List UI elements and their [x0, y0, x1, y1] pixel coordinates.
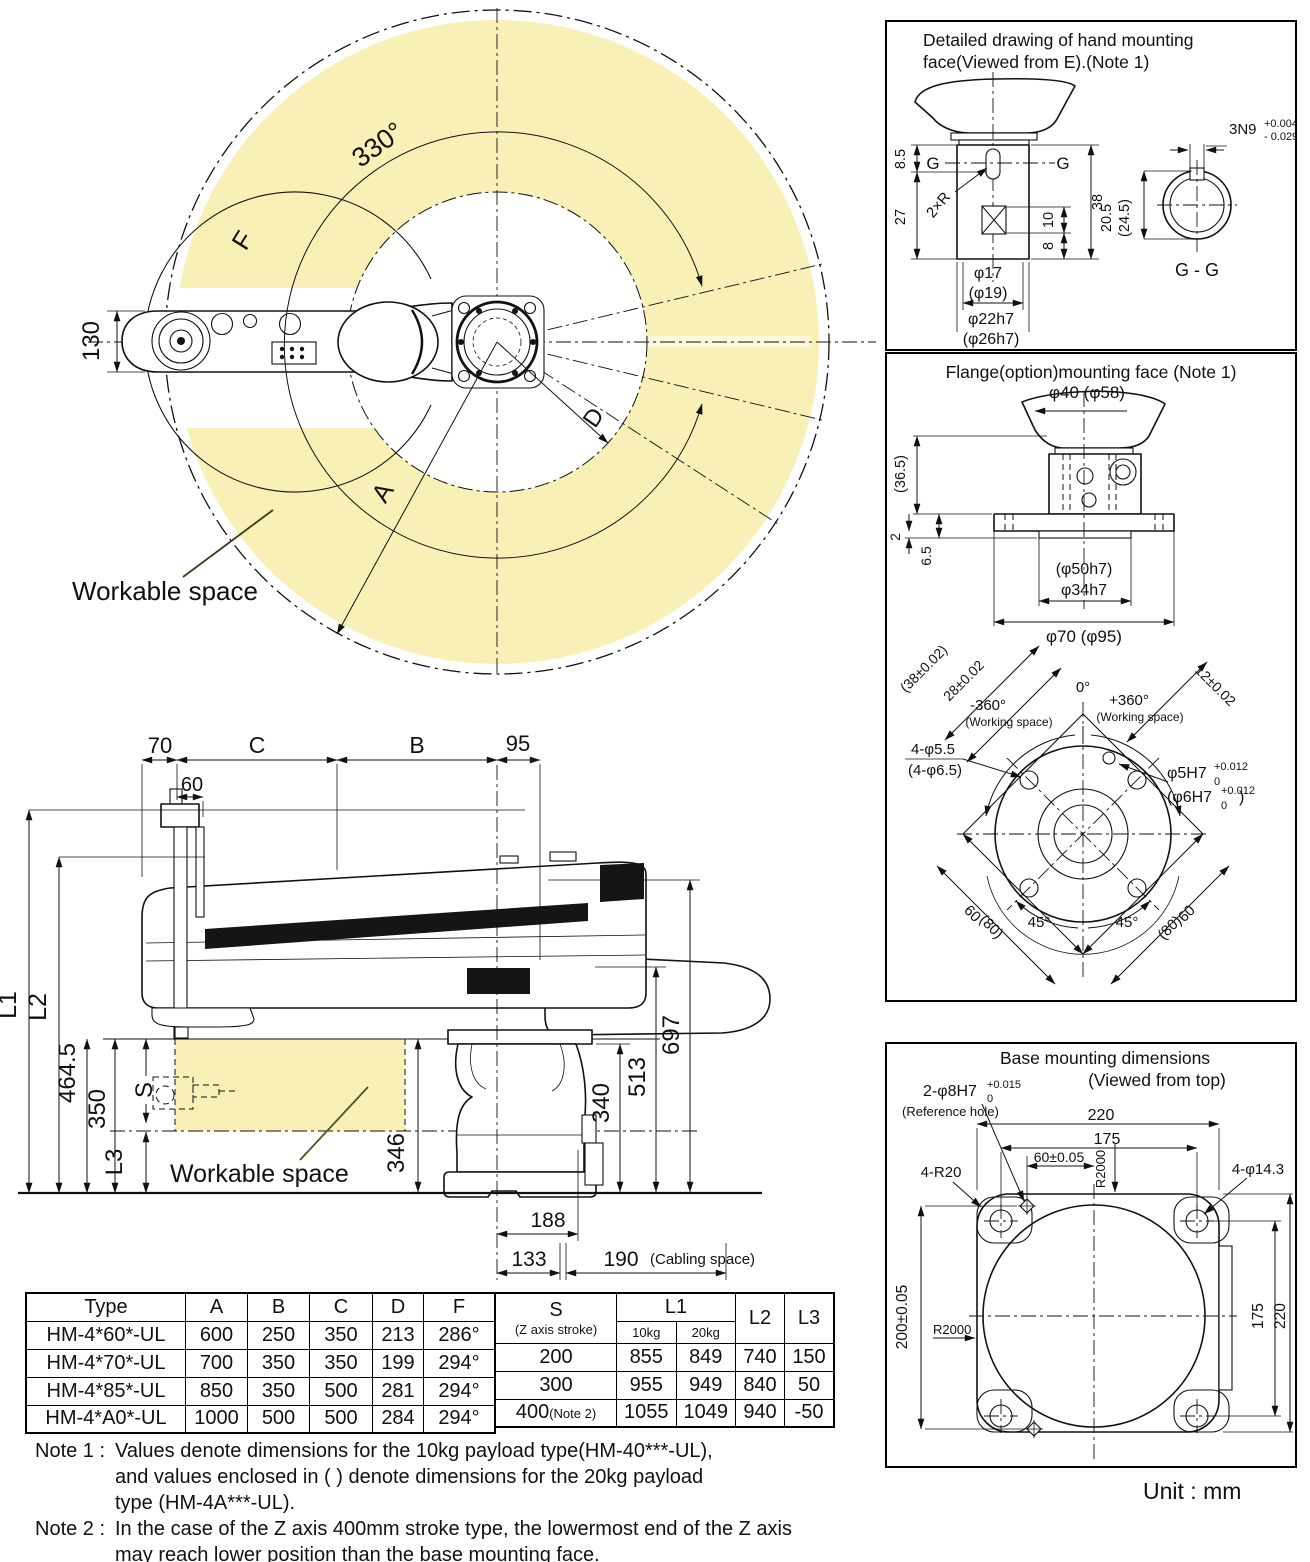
base-mounting-drawing: Base mounting dimensions (Viewed from to… — [887, 1044, 1295, 1466]
dim-2xr: 2×R — [923, 189, 954, 221]
ref-hole-note: (Reference hole) — [902, 1104, 999, 1119]
hand-mounting-panel: Detailed drawing of hand mounting face(V… — [885, 20, 1297, 351]
cell-l1-10: 1055 — [617, 1399, 677, 1427]
cell-d: 213 — [373, 1321, 424, 1349]
dim-24-5: (24.5) — [1117, 199, 1133, 237]
dim-27: 27 — [893, 209, 909, 225]
cell-f: 294° — [424, 1377, 496, 1405]
cell-a: 600 — [186, 1321, 248, 1349]
base-title-2: (Viewed from top) — [1088, 1070, 1226, 1090]
col-a: A — [186, 1293, 248, 1321]
working-space-left: (Working space) — [965, 715, 1052, 729]
phi5-tol-top: +0.012 — [1214, 761, 1248, 773]
base-mounting-panel: Base mounting dimensions (Viewed from to… — [885, 1042, 1297, 1468]
cell-l1-10: 855 — [617, 1343, 677, 1371]
cell-l2: 840 — [736, 1371, 785, 1399]
dim-20-5: 20.5 — [1099, 204, 1115, 232]
deg-plus-360: +360° — [1109, 692, 1149, 709]
cell-f: 294° — [424, 1349, 496, 1377]
g-label-left: G — [926, 154, 939, 173]
cabling-space-label: (Cabling space) — [650, 1251, 755, 1268]
cell-b: 250 — [248, 1321, 310, 1349]
cell-l2: 740 — [736, 1343, 785, 1371]
dim-8-5: 8.5 — [893, 149, 909, 169]
dim-200-005: 200±0.05 — [894, 1285, 911, 1350]
cell-type: HM-4*A0*-UL — [26, 1405, 186, 1433]
col-c: C — [310, 1293, 373, 1321]
notes: Note 1 : Values denote dimensions for th… — [35, 1438, 835, 1562]
flange-panel: Flange(option)mounting face (Note 1) — [885, 352, 1297, 1002]
table-row: 200 855 849 740 150 — [495, 1343, 834, 1371]
table-row: HM-4*85*-UL850350500281294° — [26, 1377, 495, 1405]
cell-s: 400(Note 2) — [495, 1399, 617, 1427]
dim-phi17: φ17 — [974, 265, 1002, 282]
dim-phi5h7: φ5H7 — [1167, 765, 1207, 782]
dim-36-5: (36.5) — [893, 455, 909, 493]
cell-b: 350 — [248, 1377, 310, 1405]
col-s: S (Z axis stroke) — [495, 1293, 617, 1343]
cell-c: 500 — [310, 1377, 373, 1405]
robot-base-column — [444, 1030, 603, 1197]
cell-type: HM-4*70*-UL — [26, 1349, 186, 1377]
note2-line2: may reach lower position than the base m… — [115, 1542, 792, 1562]
dim-513: 513 — [624, 1057, 651, 1097]
dim-340: 340 — [588, 1083, 615, 1123]
col-l3: L3 — [785, 1293, 835, 1343]
flange-side-drawing — [905, 391, 1174, 626]
col-l1-20kg: 20kg — [676, 1321, 736, 1343]
r2000-left: R2000 — [933, 1322, 971, 1337]
cell-d: 281 — [373, 1377, 424, 1405]
cell-f: 294° — [424, 1405, 496, 1433]
dim-l1: L1 — [0, 991, 22, 1019]
dim-4-phi143: 4-φ14.3 — [1232, 1161, 1284, 1178]
dim-4-r20: 4-R20 — [921, 1164, 962, 1181]
flange-title: Flange(option)mounting face (Note 1) — [946, 362, 1237, 382]
cell-b: 350 — [248, 1349, 310, 1377]
dim-4-phi65: (4-φ6.5) — [908, 762, 962, 779]
col-l2: L2 — [736, 1293, 785, 1343]
dim-c: C — [249, 732, 266, 758]
dim-464-5: 464.5 — [54, 1043, 81, 1103]
dim-60: 60 — [181, 774, 203, 796]
cell-s: 200 — [495, 1343, 617, 1371]
base-title-1: Base mounting dimensions — [1000, 1048, 1210, 1068]
dim-220-right: 220 — [1272, 1303, 1289, 1329]
cell-type: HM-4*85*-UL — [26, 1377, 186, 1405]
deg-45-left: 45° — [1028, 914, 1051, 931]
dim-70: 70 — [148, 733, 172, 758]
dim-phi70-95: φ70 (φ95) — [1046, 627, 1122, 646]
workable-space-label-side: Workable space — [170, 1160, 349, 1188]
dim-8: 8 — [1041, 242, 1057, 250]
col-l1: L1 — [617, 1293, 736, 1321]
robot-arm-body-side — [142, 852, 646, 1008]
dim-95: 95 — [506, 731, 530, 756]
unit-label: Unit : mm — [1143, 1478, 1241, 1505]
table-row: 300 955 949 840 50 — [495, 1371, 834, 1399]
col-type: Type — [26, 1293, 186, 1321]
cell-l3: 150 — [785, 1343, 835, 1371]
cell-a: 1000 — [186, 1405, 248, 1433]
hand-mounting-drawing: Detailed drawing of hand mounting face(V… — [887, 22, 1295, 349]
dim-175-right: 175 — [1250, 1303, 1267, 1329]
dim-190: 190 — [603, 1248, 638, 1271]
deg-minus-360: -360° — [970, 697, 1006, 714]
cell-c: 350 — [310, 1349, 373, 1377]
dim-phi19: (φ19) — [969, 285, 1008, 302]
note1-line3: type (HM-4A***-UL). — [115, 1490, 713, 1516]
ref-hole-tol-top: +0.015 — [987, 1079, 1021, 1091]
cell-type: HM-4*60*-UL — [26, 1321, 186, 1349]
cell-l1-20: 1049 — [676, 1399, 736, 1427]
cell-a: 700 — [186, 1349, 248, 1377]
deg-45-right: 45° — [1116, 914, 1139, 931]
dim-60-005: 60±0.05 — [1034, 1149, 1085, 1165]
dim-b: B — [409, 732, 424, 758]
stroke-table: S (Z axis stroke) L1 L2 L3 10kg 20kg 200… — [494, 1292, 835, 1428]
g-label-right: G — [1056, 154, 1069, 173]
dim-130-label: 130 — [78, 321, 105, 361]
note-2: Note 2 : In the case of the Z axis 400mm… — [35, 1516, 835, 1562]
note1-label: Note 1 : — [35, 1438, 115, 1516]
cell-b: 500 — [248, 1405, 310, 1433]
dim-220-top: 220 — [1088, 1107, 1115, 1124]
phi6-close: ) — [1239, 789, 1244, 806]
key-3n9: 3N9 — [1229, 121, 1257, 138]
cell-l1-20: 949 — [676, 1371, 736, 1399]
workable-space-label-top: Workable space — [72, 576, 258, 606]
dim-4-phi55: 4-φ5.5 — [911, 741, 955, 758]
table-row: HM-4*A0*-UL1000500500284294° — [26, 1405, 495, 1433]
dim-l2: L2 — [24, 993, 52, 1021]
dim-346: 346 — [383, 1133, 410, 1173]
key-tol-bot: - 0.029 — [1264, 131, 1295, 143]
dim-phi6h7: (φ6H7 — [1167, 789, 1212, 806]
cell-d: 284 — [373, 1405, 424, 1433]
note1-line1: Values denote dimensions for the 10kg pa… — [115, 1438, 713, 1464]
cell-l1-10: 955 — [617, 1371, 677, 1399]
dim-133: 133 — [511, 1248, 546, 1271]
hand-title-1: Detailed drawing of hand mounting — [923, 30, 1193, 50]
note1-line2: and values enclosed in ( ) denote dimens… — [115, 1464, 713, 1490]
dim-350: 350 — [84, 1089, 111, 1129]
col-b: B — [248, 1293, 310, 1321]
dim-6-5: 6.5 — [918, 546, 934, 566]
deg-0: 0° — [1076, 679, 1090, 696]
key-tol-top: +0.004 — [1264, 118, 1295, 130]
dim-10: 10 — [1041, 212, 1057, 228]
cell-c: 350 — [310, 1321, 373, 1349]
cell-f: 286° — [424, 1321, 496, 1349]
cell-l1-20: 849 — [676, 1343, 736, 1371]
dim-38-tol: (38±0.02) — [897, 642, 951, 696]
note2-label: Note 2 : — [35, 1516, 115, 1562]
cell-c: 500 — [310, 1405, 373, 1433]
table-row: 400(Note 2) 1055 1049 940 -50 — [495, 1399, 834, 1427]
cell-s: 300 — [495, 1371, 617, 1399]
dim-l3: L3 — [101, 1149, 128, 1176]
dim-phi34h7: φ34h7 — [1061, 582, 1107, 599]
dim-s: S — [131, 1082, 158, 1098]
dim-2: 2 — [887, 533, 903, 541]
col-f: F — [424, 1293, 496, 1321]
gg-section-label: G - G — [1175, 260, 1219, 280]
note2-line1: In the case of the Z axis 400mm stroke t… — [115, 1516, 792, 1542]
col-l1-10kg: 10kg — [617, 1321, 677, 1343]
ref-hole-label: 2-φ8H7 — [923, 1083, 977, 1100]
r2000-top: R2000 — [1093, 1150, 1108, 1188]
dim-phi40-58: φ40 (φ58) — [1049, 383, 1125, 402]
dim-12-tol: 12±0.02 — [1192, 662, 1239, 709]
note-1: Note 1 : Values denote dimensions for th… — [35, 1438, 835, 1516]
sideview-robot: 70 C B 95 60 L1 L2 464.5 350 S L3 697 51… — [0, 705, 880, 1295]
working-space-right: (Working space) — [1096, 710, 1183, 724]
phi5-tol-bot: 0 — [1214, 776, 1220, 788]
dim-phi26h7: (φ26h7) — [963, 331, 1020, 348]
table-row: HM-4*60*-UL600250350213286° — [26, 1321, 495, 1349]
hand-title-2: face(Viewed from E).(Note 1) — [923, 52, 1149, 72]
flange-drawing: Flange(option)mounting face (Note 1) — [887, 354, 1295, 1000]
col-d: D — [373, 1293, 424, 1321]
cell-l2: 940 — [736, 1399, 785, 1427]
topview-workable-space: 330° F A D 130 Workable space — [0, 0, 880, 705]
phi6-tol-bot: 0 — [1221, 800, 1227, 812]
dim-188: 188 — [530, 1209, 565, 1232]
dim-697: 697 — [658, 1015, 685, 1055]
dim-175-top: 175 — [1094, 1131, 1121, 1148]
dimension-table: Type A B C D F HM-4*60*-UL60025035021328… — [25, 1292, 496, 1434]
robot-dimension-drawing: 330° F A D 130 Workable space — [0, 0, 1310, 1562]
cell-a: 850 — [186, 1377, 248, 1405]
dim-phi22h7: φ22h7 — [968, 311, 1014, 328]
table-row: HM-4*70*-UL700350350199294° — [26, 1349, 495, 1377]
dim-phi50h7: (φ50h7) — [1056, 561, 1113, 578]
cell-l3: 50 — [785, 1371, 835, 1399]
phi6-tol-top: +0.012 — [1221, 785, 1255, 797]
gg-section-drawing — [1144, 144, 1237, 252]
cell-l3: -50 — [785, 1399, 835, 1427]
cell-d: 199 — [373, 1349, 424, 1377]
